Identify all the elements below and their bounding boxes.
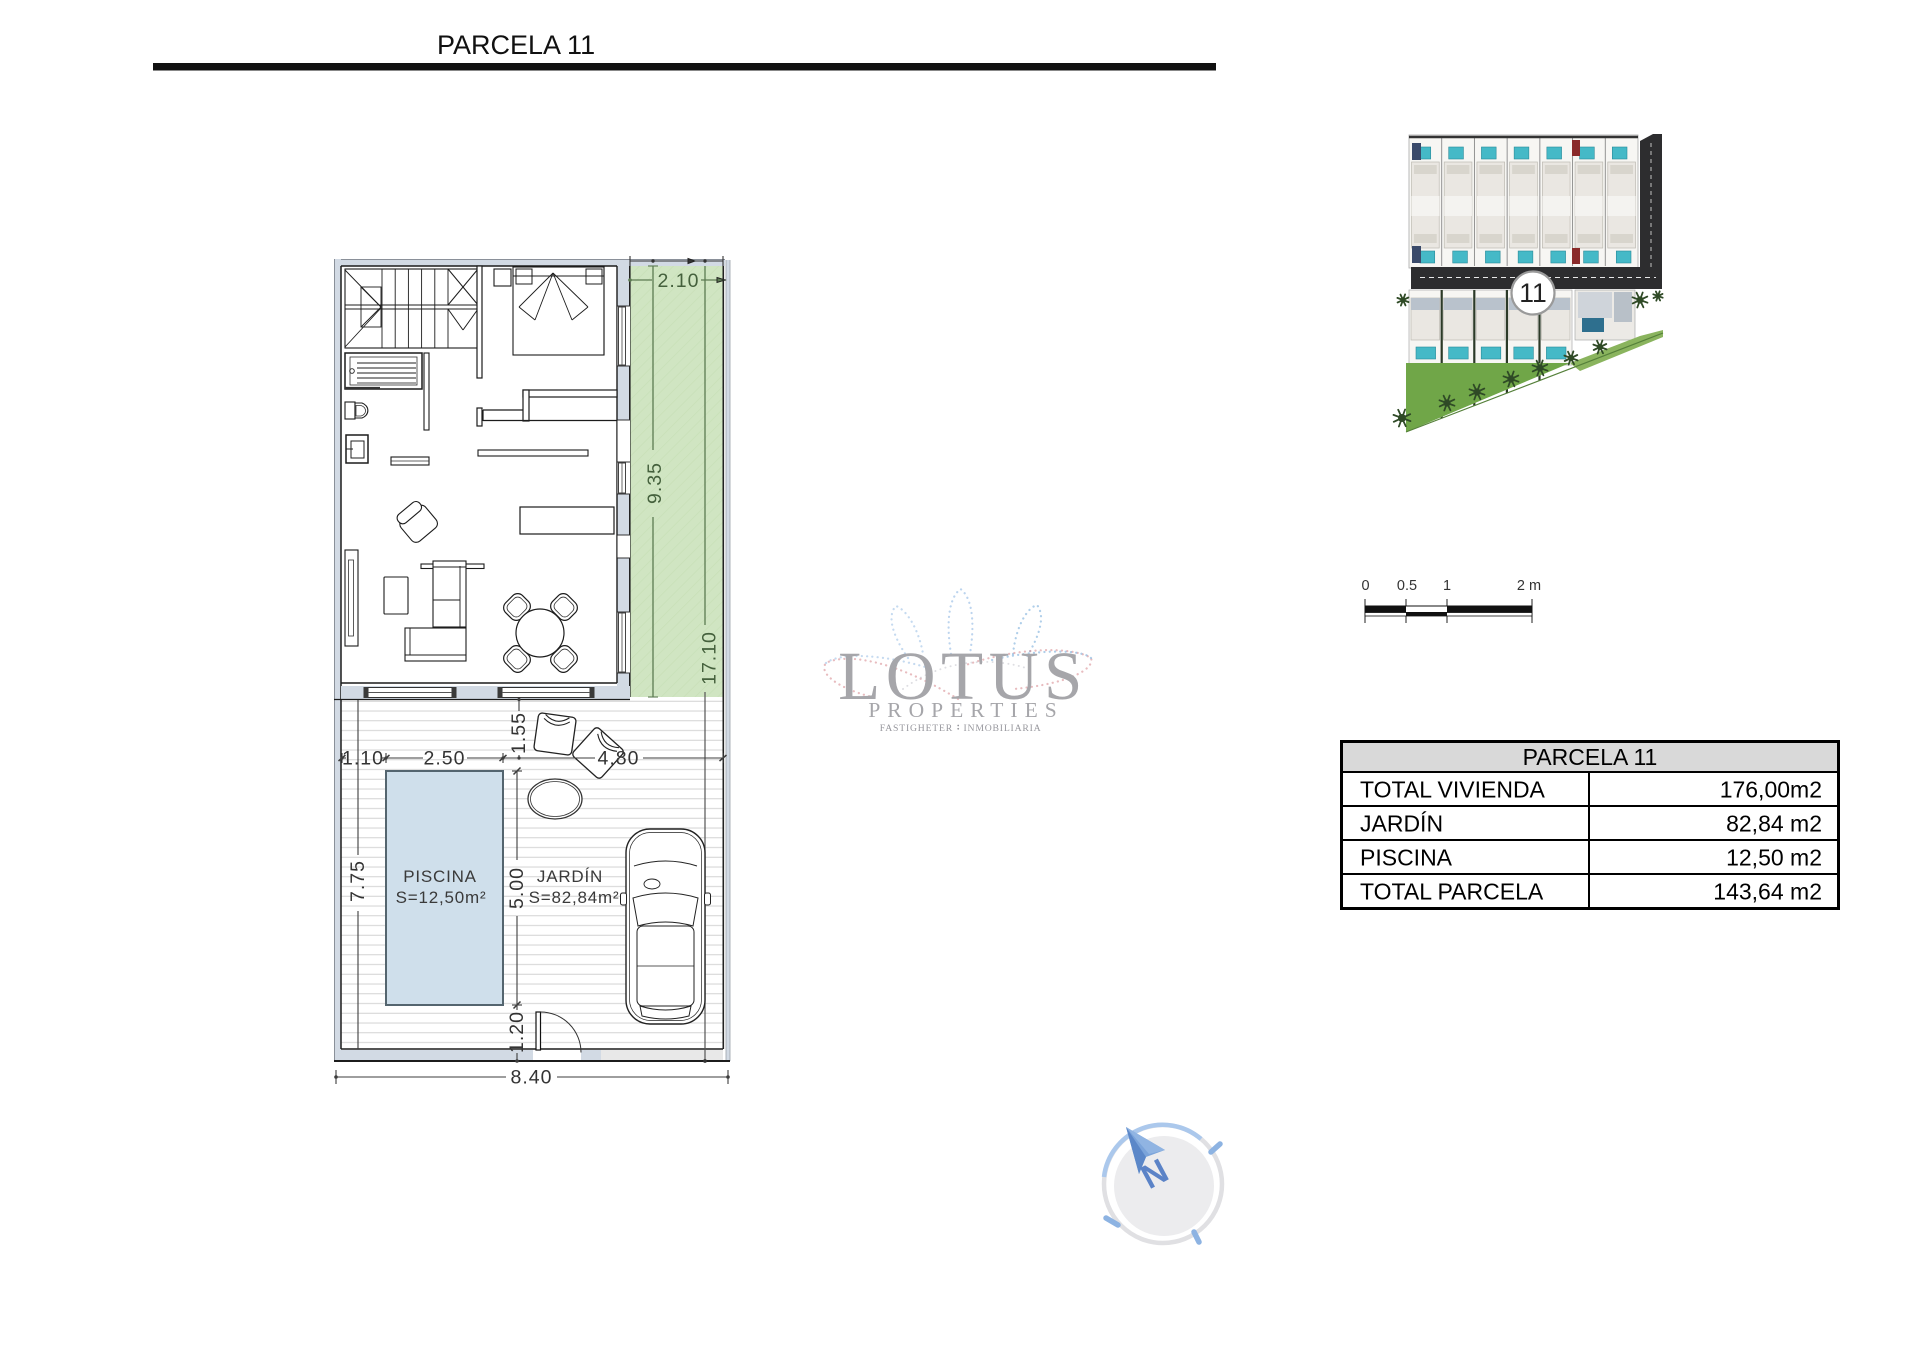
svg-text:1.55: 1.55 bbox=[508, 712, 530, 754]
svg-text:17.10: 17.10 bbox=[699, 631, 721, 685]
svg-text:0.5: 0.5 bbox=[1397, 578, 1417, 594]
svg-text:2 m: 2 m bbox=[1517, 578, 1541, 594]
svg-text:TOTAL PARCELA: TOTAL PARCELA bbox=[1360, 879, 1544, 905]
svg-text:9.35: 9.35 bbox=[644, 462, 666, 504]
svg-text:JARDÍN: JARDÍN bbox=[537, 867, 603, 886]
svg-text:INMOBILIARIA: INMOBILIARIA bbox=[964, 723, 1042, 734]
svg-text:S=12,50m²: S=12,50m² bbox=[396, 888, 487, 907]
svg-text:2.10: 2.10 bbox=[658, 270, 700, 292]
svg-text:11: 11 bbox=[1519, 278, 1547, 308]
svg-text:FASTIGHETER: FASTIGHETER bbox=[880, 723, 953, 734]
svg-text:1.20: 1.20 bbox=[506, 1011, 528, 1053]
svg-text:82,84 m2: 82,84 m2 bbox=[1726, 811, 1822, 837]
svg-text:1.10: 1.10 bbox=[342, 748, 384, 770]
svg-text:7.75: 7.75 bbox=[347, 860, 369, 902]
svg-text:1: 1 bbox=[1443, 578, 1451, 594]
svg-text:PARCELA 11: PARCELA 11 bbox=[1523, 744, 1658, 770]
svg-text:5.00: 5.00 bbox=[506, 867, 528, 909]
svg-text:8.40: 8.40 bbox=[511, 1067, 553, 1089]
svg-text:176,00m2: 176,00m2 bbox=[1720, 777, 1822, 803]
svg-text:4.80: 4.80 bbox=[598, 748, 640, 770]
svg-text:2.50: 2.50 bbox=[424, 748, 466, 770]
svg-text:PARCELA 11: PARCELA 11 bbox=[437, 30, 595, 60]
svg-text:PISCINA: PISCINA bbox=[403, 867, 477, 886]
svg-text:12,50 m2: 12,50 m2 bbox=[1726, 845, 1822, 871]
svg-text:143,64 m2: 143,64 m2 bbox=[1713, 879, 1822, 905]
svg-text:0: 0 bbox=[1361, 578, 1369, 594]
svg-text:PISCINA: PISCINA bbox=[1360, 845, 1453, 871]
svg-text:S=82,84m²: S=82,84m² bbox=[529, 888, 620, 907]
svg-text:PROPERTIES: PROPERTIES bbox=[868, 698, 1063, 722]
svg-text:JARDÍN: JARDÍN bbox=[1360, 811, 1443, 837]
svg-text:TOTAL VIVIENDA: TOTAL VIVIENDA bbox=[1360, 777, 1546, 803]
